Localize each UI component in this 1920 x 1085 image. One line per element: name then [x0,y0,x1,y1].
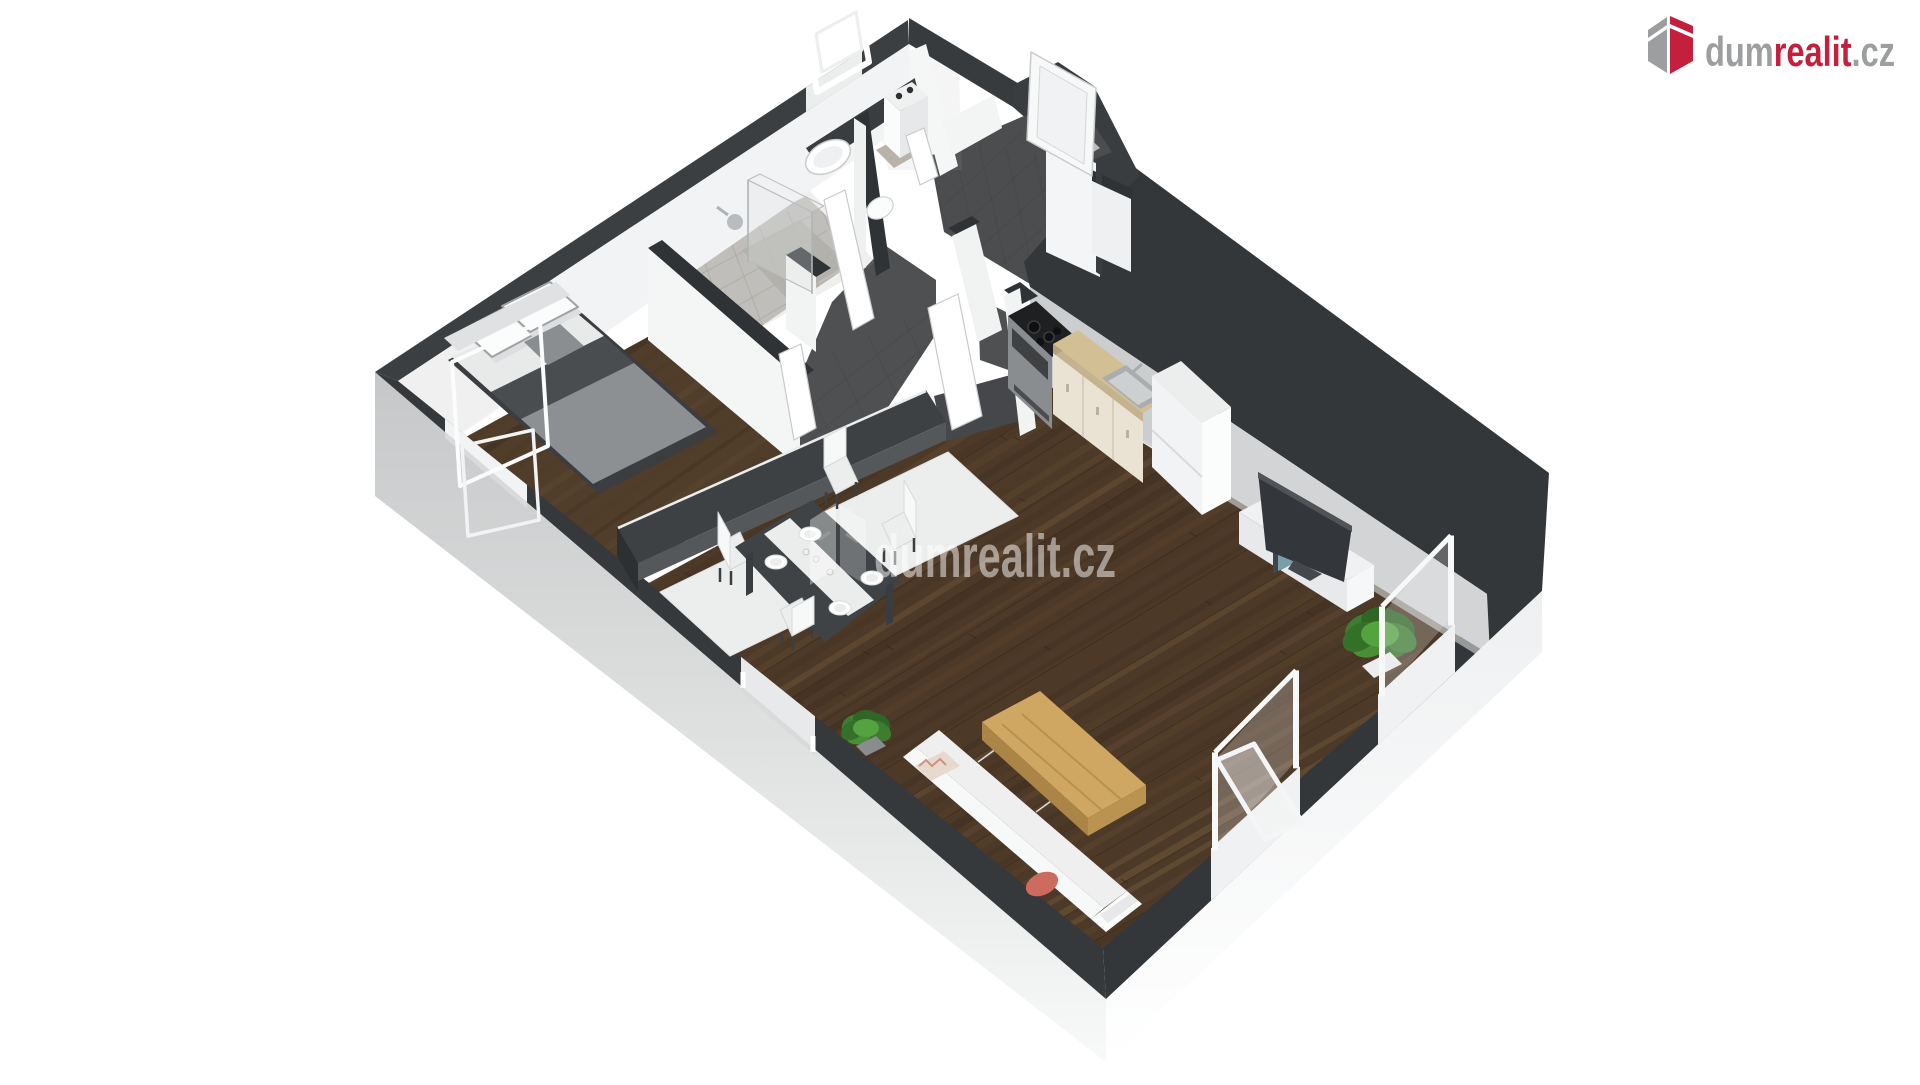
svg-text:dumrealit.cz: dumrealit.cz [874,523,1116,590]
svg-text:dumrealit.cz: dumrealit.cz [1705,28,1895,75]
